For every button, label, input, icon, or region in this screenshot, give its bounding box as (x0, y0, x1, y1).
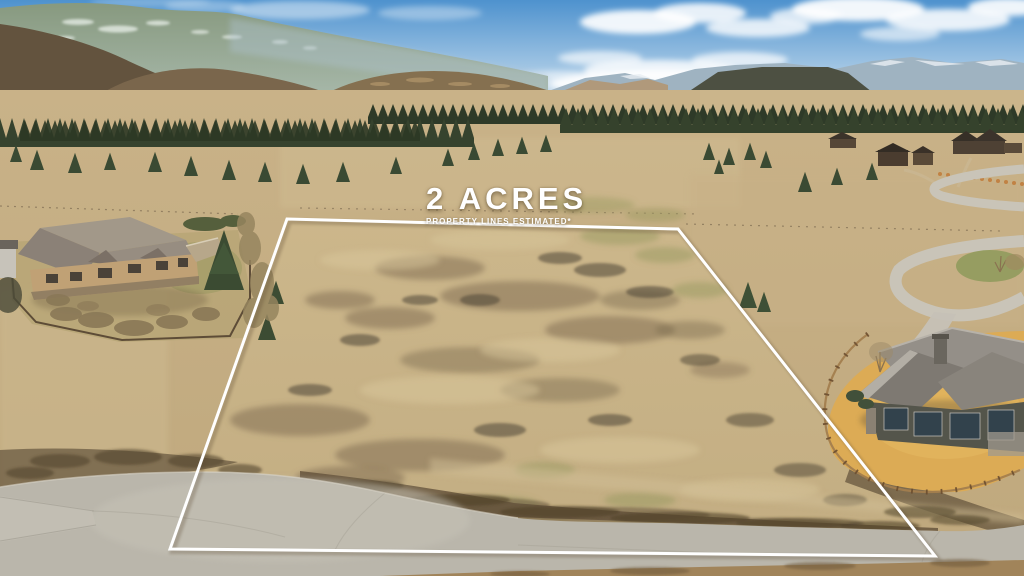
patio (988, 432, 1024, 456)
left-homestead (0, 212, 279, 342)
acreage-label: 2 ACRES (426, 183, 587, 214)
acreage-overlay: 2 ACRES PROPERTY LINES ESTIMATED* (426, 183, 587, 226)
aerial-lot-photo: 2 ACRES PROPERTY LINES ESTIMATED* (0, 0, 1024, 576)
scene (0, 0, 1024, 576)
disclaimer-label: PROPERTY LINES ESTIMATED* (426, 217, 587, 226)
